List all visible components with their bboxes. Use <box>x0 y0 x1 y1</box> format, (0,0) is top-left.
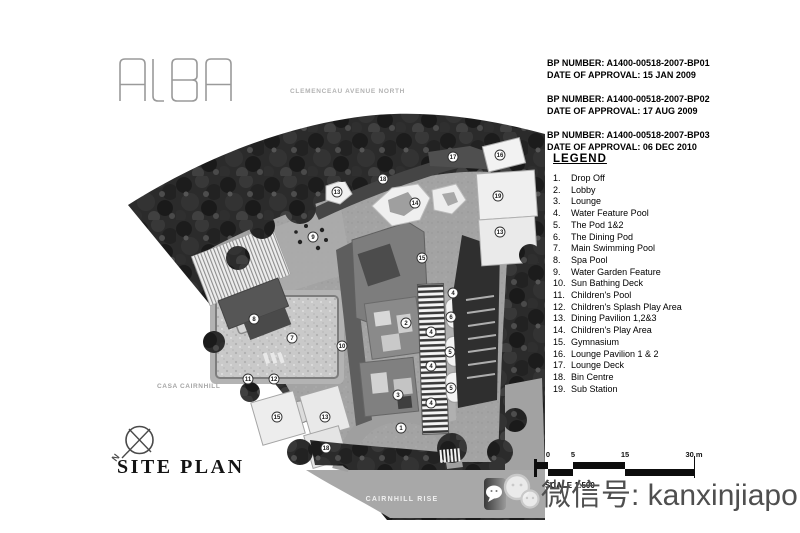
plan-marker-number: 10 <box>339 344 346 350</box>
legend-item: 10.Sun Bathing Deck <box>553 278 788 290</box>
road-label-cairnhill-rise: CAIRNHILL RISE <box>366 496 439 503</box>
legend: LEGEND 1.Drop Off2.Lobby3.Lounge4.Water … <box>553 153 788 395</box>
approval-block-3: BP NUMBER: A1400-00518-2007-BP03 DATE OF… <box>547 130 787 153</box>
legend-item: 15.Gymnasium <box>553 337 788 349</box>
legend-item: 17.Lounge Deck <box>553 360 788 372</box>
legend-item: 6.The Dining Pod <box>553 232 788 244</box>
legend-item: 11.Children's Pool <box>553 290 788 302</box>
alba-logo <box>119 56 239 103</box>
logo-letter-b <box>172 59 197 101</box>
plan-marker-number: 17 <box>450 155 457 161</box>
plan-marker-number: 11 <box>245 377 252 383</box>
legend-item: 2.Lobby <box>553 185 788 197</box>
legend-item: 19.Sub Station <box>553 384 788 396</box>
legend-item: 8.Spa Pool <box>553 255 788 267</box>
plan-marker-number: 13 <box>497 230 504 236</box>
plan-marker-number: 16 <box>497 153 504 159</box>
plan-marker-number: 13 <box>322 415 329 421</box>
legend-item: 5.The Pod 1&2 <box>553 220 788 232</box>
legend-item: 16.Lounge Pavilion 1 & 2 <box>553 349 788 361</box>
neighbour-label-casa-cairnhill: CASA CAIRNHILL <box>157 383 220 390</box>
legend-item: 1.Drop Off <box>553 173 788 185</box>
legend-item: 7.Main Swimming Pool <box>553 243 788 255</box>
plan-marker-number: 18 <box>323 446 330 452</box>
page-title: SITE PLAN <box>117 456 245 479</box>
watermark-text: 微信号: kanxinjiapo <box>541 470 798 514</box>
wechat-ghost-bubbles <box>505 475 539 508</box>
approval-blocks: BP NUMBER: A1400-00518-2007-BP01 DATE OF… <box>547 58 787 166</box>
legend-item: 14.Children's Play Area <box>553 325 788 337</box>
legend-item: 12.Children's Splash Play Area <box>553 302 788 314</box>
plan-marker-number: 15 <box>419 256 426 262</box>
plan-marker-number: 18 <box>380 177 387 183</box>
legend-item: 4.Water Feature Pool <box>553 208 788 220</box>
plan-marker-number: 19 <box>495 194 502 200</box>
approval-date: DATE OF APPROVAL: 06 DEC 2010 <box>547 142 787 154</box>
wechat-icon <box>482 468 546 520</box>
courtyard-1 <box>374 310 392 326</box>
approval-block-1: BP NUMBER: A1400-00518-2007-BP01 DATE OF… <box>547 58 787 81</box>
street-label-clemenceau: CLEMENCEAU AVENUE NORTH <box>290 88 405 95</box>
approval-date: DATE OF APPROVAL: 15 JAN 2009 <box>547 70 787 82</box>
plan-marker-number: 12 <box>271 377 278 383</box>
plan-marker-number: 15 <box>274 415 281 421</box>
scale-tick: 0 <box>546 450 550 459</box>
legend-item: 3.Lounge <box>553 196 788 208</box>
scale-tick: 5 <box>571 450 575 459</box>
site-plan-page: CLEMENCEAU AVENUE NORTH BP NUMBER: A1400… <box>0 0 800 533</box>
logo-letter-l <box>153 59 164 101</box>
scale-tick: 15 <box>621 450 629 459</box>
water-feature-pool <box>417 284 448 435</box>
legend-item: 18.Bin Centre <box>553 372 788 384</box>
substation-roof <box>476 170 537 220</box>
bp-number: BP NUMBER: A1400-00518-2007-BP02 <box>547 94 787 106</box>
courtyard-3 <box>381 333 401 351</box>
approval-block-2: BP NUMBER: A1400-00518-2007-BP02 DATE OF… <box>547 94 787 117</box>
logo-letter-a2 <box>206 59 231 101</box>
plan-marker-number: 13 <box>334 190 341 196</box>
logo-letter-a1 <box>120 59 145 101</box>
approval-date: DATE OF APPROVAL: 17 AUG 2009 <box>547 106 787 118</box>
legend-item: 9.Water Garden Feature <box>553 267 788 279</box>
bp-number: BP NUMBER: A1400-00518-2007-BP03 <box>547 130 787 142</box>
plan-marker-number: 14 <box>412 201 419 207</box>
legend-item: 13.Dining Pavilion 1,2&3 <box>553 313 788 325</box>
legend-item-list: 1.Drop Off2.Lobby3.Lounge4.Water Feature… <box>553 173 788 395</box>
courtyard-4 <box>371 372 389 394</box>
bp-number: BP NUMBER: A1400-00518-2007-BP01 <box>547 58 787 70</box>
legend-title: LEGEND <box>553 153 788 165</box>
